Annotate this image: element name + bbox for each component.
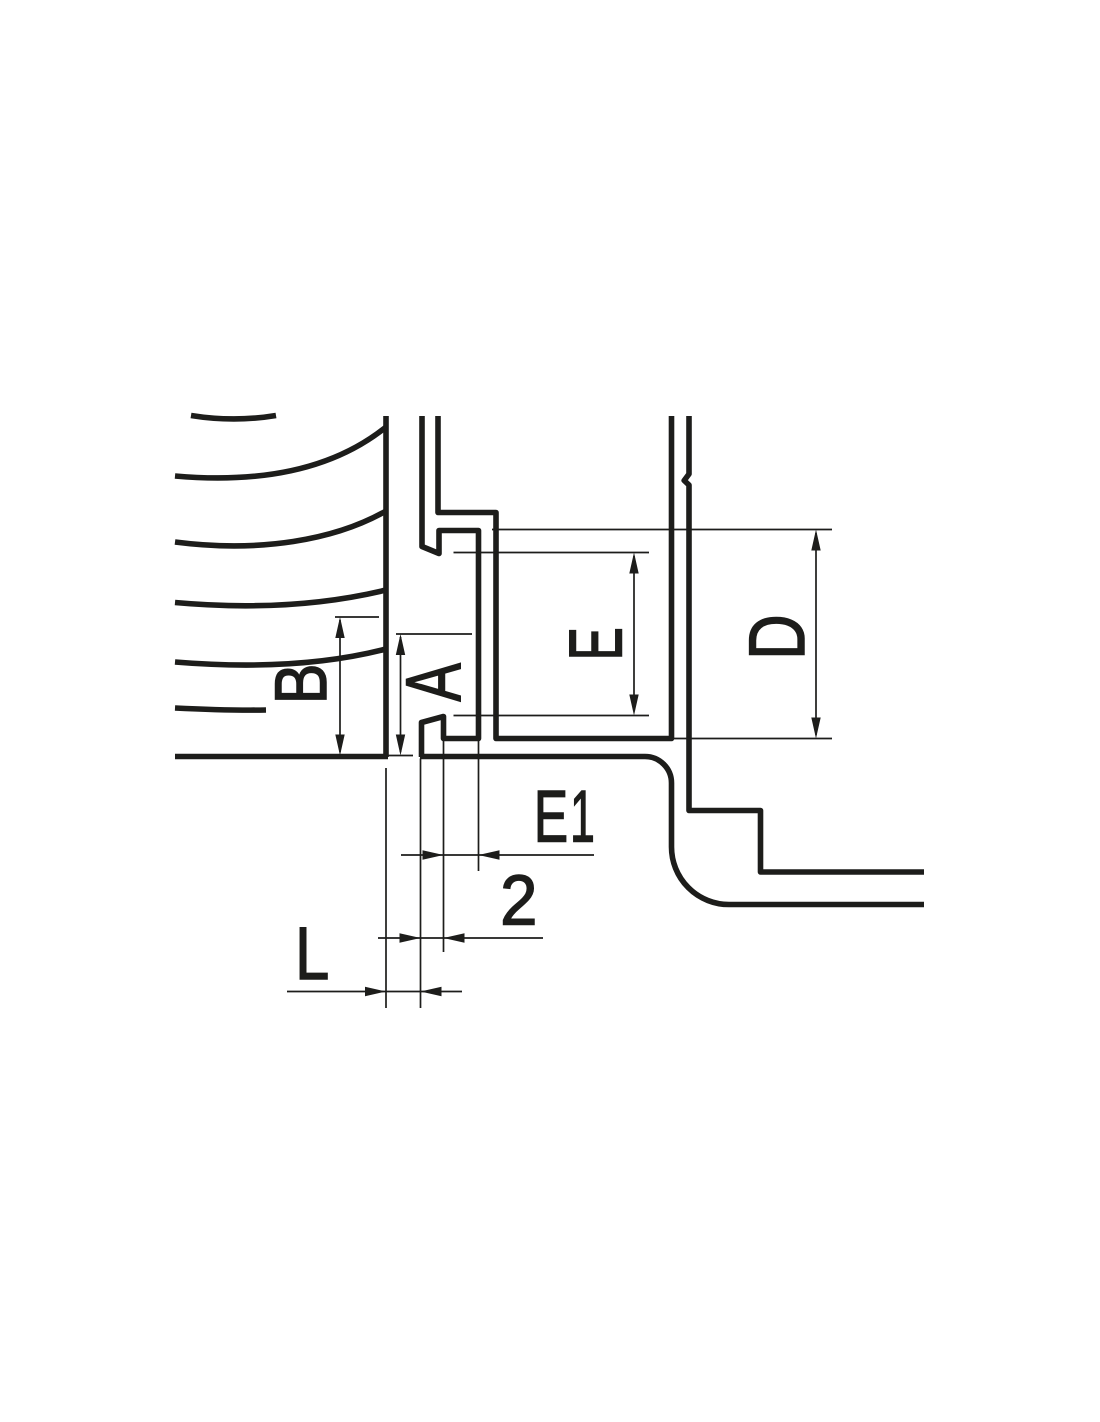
svg-text:A: A bbox=[391, 663, 477, 702]
svg-text:B: B bbox=[261, 664, 342, 705]
svg-text:D: D bbox=[733, 614, 822, 659]
svg-text:2: 2 bbox=[500, 861, 537, 940]
svg-text:1: 1 bbox=[570, 775, 595, 857]
svg-text:E: E bbox=[534, 777, 568, 858]
svg-text:L: L bbox=[295, 913, 329, 996]
svg-text:E: E bbox=[553, 627, 638, 660]
